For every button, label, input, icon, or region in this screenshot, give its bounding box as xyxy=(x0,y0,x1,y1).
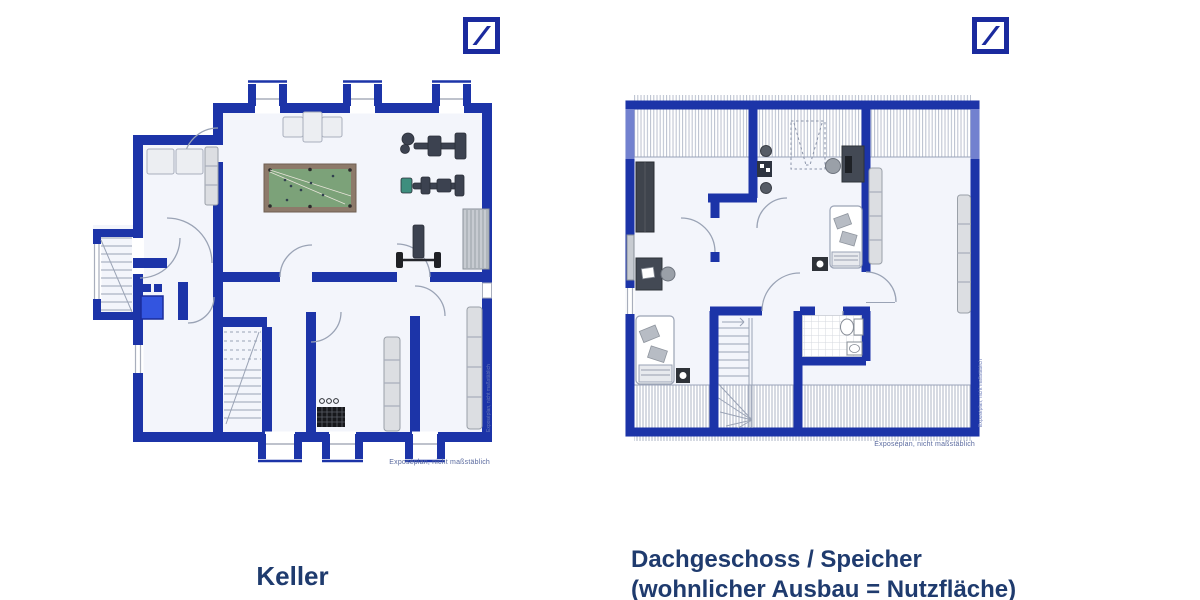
shelf-basement-middle xyxy=(384,337,400,431)
shelf-center xyxy=(869,168,882,264)
keller-caption: Keller xyxy=(185,561,400,592)
bed-center-room xyxy=(830,206,862,268)
office-chair xyxy=(826,159,841,174)
shelf-upper-left xyxy=(205,147,218,205)
keller-floor-plan xyxy=(93,82,493,462)
deutsche-bank-logo-icon xyxy=(463,17,500,54)
right-wall-niche xyxy=(483,283,492,298)
nightstand-center xyxy=(812,257,828,271)
dachgeschoss-disclaimer: Exposéplan, nicht maßstäblich xyxy=(805,441,975,448)
dachgeschoss-caption-line2: (wohnlicher Ausbau = Nutzfläche) xyxy=(631,575,1016,600)
dachgeschoss-floor-plan xyxy=(625,95,980,441)
shelf-right-wall xyxy=(958,195,971,313)
radiator xyxy=(463,209,489,269)
knee-wall-left xyxy=(626,109,635,159)
office-chair xyxy=(661,267,675,281)
dachgeschoss-side-watermark: Exposéplan, nicht maßstäblich xyxy=(978,359,984,427)
floor-plans-drawing xyxy=(0,0,1200,600)
wardrobe xyxy=(636,162,654,232)
left-wall-window xyxy=(133,345,144,373)
chess-table xyxy=(757,161,772,177)
stool xyxy=(761,183,772,194)
toilet xyxy=(841,319,864,335)
dachgeschoss-caption-line1: Dachgeschoss / Speicher xyxy=(631,545,1016,575)
keller-side-watermark: Exposéplan, nicht maßstäblich xyxy=(486,364,492,432)
knee-wall-right xyxy=(971,109,980,159)
window-bay-bottom-2 xyxy=(322,432,363,462)
left-wall-window xyxy=(626,288,635,314)
dachgeschoss-caption: Dachgeschoss / Speicher (wohnlicher Ausb… xyxy=(631,545,1016,600)
window-bay-bottom-1 xyxy=(258,432,302,462)
stool xyxy=(761,146,772,157)
radiator-left xyxy=(627,235,634,280)
shelf-basement-right xyxy=(467,307,482,429)
billiard-table xyxy=(264,164,356,212)
window-bay-bottom-3 xyxy=(405,432,445,462)
bed-left-room xyxy=(636,316,674,384)
nightstand-left xyxy=(676,368,690,383)
sink xyxy=(847,342,862,355)
keller-disclaimer: Exposéplan, nicht maßstäblich xyxy=(320,459,490,466)
deutsche-bank-logo-icon xyxy=(972,17,1009,54)
bathroom xyxy=(803,316,864,357)
floor-plan-exposé-page: Keller Dachgeschoss / Speicher (wohnlich… xyxy=(0,0,1200,600)
chairs-and-table xyxy=(283,112,342,142)
